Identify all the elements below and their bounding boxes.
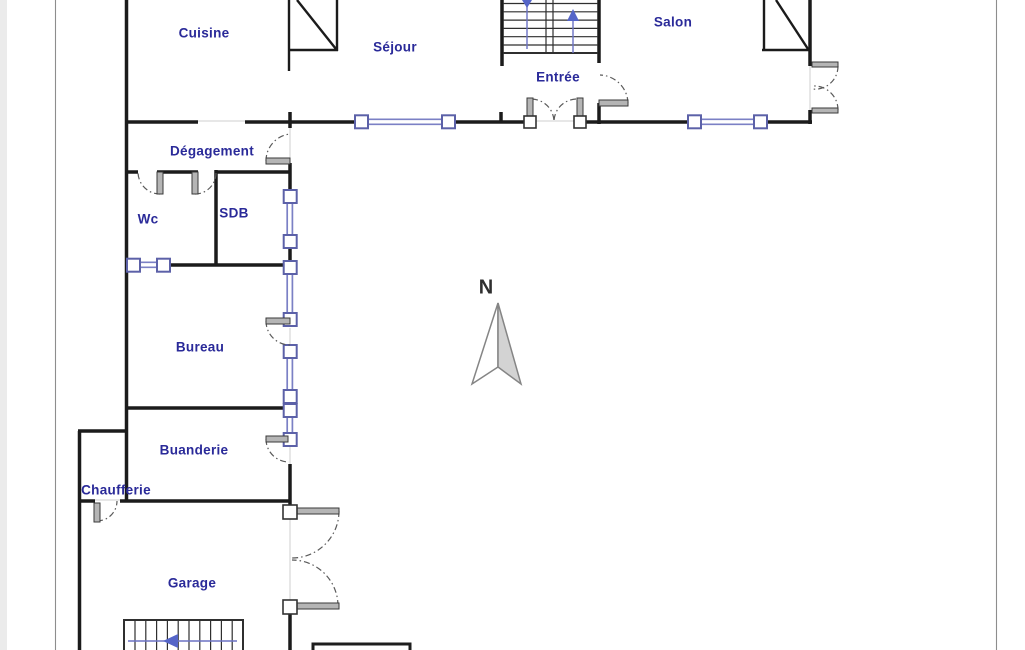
- room-label-entree: Entrée: [536, 70, 580, 85]
- chimney-left: [288, 0, 338, 71]
- staircase-upper: [503, 0, 598, 53]
- room-label-chaufferie: Chaufferie: [81, 483, 151, 498]
- page-border-lines: [56, 0, 997, 650]
- chimney-right: [762, 0, 810, 51]
- staircase-garage: [124, 620, 243, 650]
- room-label-sejour: Séjour: [373, 40, 417, 55]
- door-posts: [283, 116, 586, 614]
- arrow-left-icon: [163, 634, 178, 648]
- room-label-garage: Garage: [168, 576, 216, 591]
- garage-structure: [313, 644, 410, 650]
- windows-glazing: [140, 119, 754, 433]
- room-label-salon: Salon: [654, 15, 692, 30]
- floorplan-drawing: [0, 0, 1025, 650]
- compass-label: N: [479, 277, 493, 300]
- room-label-sdb: SDB: [219, 206, 248, 221]
- room-label-degagement: Dégagement: [170, 144, 254, 159]
- walls: [78, 0, 812, 650]
- north-arrow-icon: [472, 303, 521, 384]
- room-label-buanderie: Buanderie: [160, 443, 229, 458]
- arrow-up-icon: [567, 9, 579, 21]
- room-label-bureau: Bureau: [176, 340, 224, 355]
- room-label-cuisine: Cuisine: [179, 26, 230, 41]
- room-label-wc: Wc: [138, 212, 159, 227]
- window-frames: [127, 115, 767, 446]
- floorplan-page: Cuisine Séjour Entrée Salon Dégagement W…: [0, 0, 1025, 650]
